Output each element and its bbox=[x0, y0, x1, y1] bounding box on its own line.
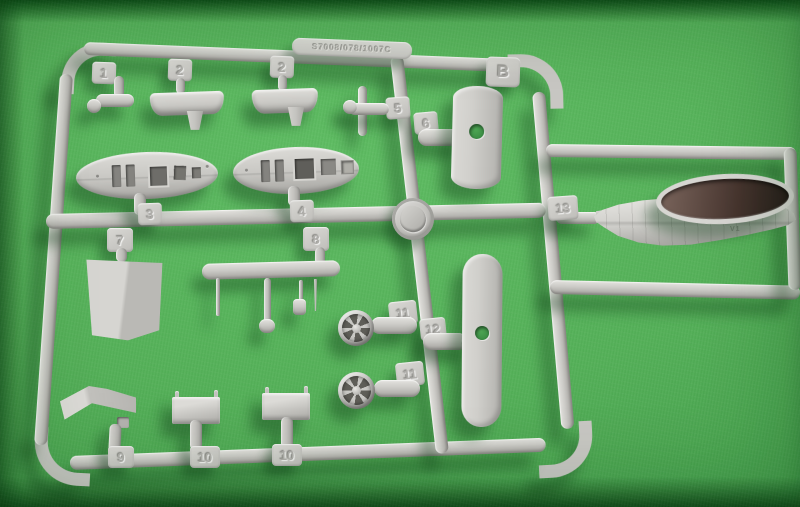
deck3-rivet-2 bbox=[206, 165, 209, 168]
part11b-spoked-wheel bbox=[338, 372, 375, 409]
part-tag-3-label: 3 bbox=[146, 206, 154, 221]
part11b-hub-cylinder bbox=[374, 380, 420, 397]
part8-paddle-stem bbox=[299, 280, 303, 300]
part-tag-2a-label: 2 bbox=[176, 62, 184, 77]
frame-rail-bottom bbox=[70, 438, 546, 470]
wing-panel-upper bbox=[451, 85, 504, 189]
deck4-rivet bbox=[245, 169, 248, 172]
part-tag-4-label: 4 bbox=[298, 203, 306, 218]
part8-spike bbox=[313, 279, 318, 311]
part-tag-1: 1 bbox=[92, 62, 117, 85]
manufacturer-logo-medallion bbox=[392, 198, 434, 240]
runner-letter: B bbox=[497, 62, 510, 82]
part10b-rect-panel bbox=[262, 393, 310, 420]
photo-model-kit-sprue: S7008/078/1007C B 1 2 2 5 6 3 bbox=[0, 0, 800, 507]
part-tag-5: 5 bbox=[385, 96, 410, 120]
part-tag-8-label: 8 bbox=[312, 232, 319, 247]
deck3-hatch-small-1 bbox=[174, 166, 186, 180]
wing-panel-lower bbox=[461, 254, 503, 427]
part-tag-13: 13 bbox=[547, 195, 579, 221]
float-hull-marking: V1 bbox=[730, 226, 741, 233]
part-tag-9-label: 9 bbox=[117, 450, 124, 465]
deck3-hatch-small-2 bbox=[192, 167, 201, 178]
deck4-hatch-mid bbox=[321, 159, 337, 176]
part-tag-10a: 10 bbox=[190, 446, 220, 468]
part8-rod-thin bbox=[216, 278, 220, 316]
part-tag-10b: 10 bbox=[272, 444, 302, 466]
part8-paddle-blade bbox=[293, 299, 306, 315]
frame-rail-left bbox=[34, 74, 73, 446]
runner-rail-extension-bottom bbox=[550, 280, 800, 300]
deck3-rivet bbox=[96, 175, 99, 178]
part-tag-9: 9 bbox=[108, 446, 134, 468]
part1-elbow-fitting bbox=[96, 94, 134, 107]
embossed-code-text: S7008/078/1007C bbox=[312, 42, 392, 54]
part11a-spoked-wheel bbox=[338, 310, 374, 346]
part-tag-4: 4 bbox=[290, 200, 315, 223]
part8-rod-foot bbox=[259, 319, 275, 333]
float-deck-part3 bbox=[75, 150, 219, 202]
part2a-curved-panel bbox=[150, 91, 225, 117]
part-tag-2b-label: 2 bbox=[278, 59, 286, 74]
frame-rail-right bbox=[532, 91, 574, 429]
deck4-hatch-small bbox=[341, 160, 354, 174]
part2b-curved-panel bbox=[252, 88, 319, 114]
deck3-slot-2 bbox=[126, 164, 136, 186]
deck4-slot-1 bbox=[261, 160, 271, 182]
part8-spreader-bar bbox=[202, 260, 340, 280]
part11a-hub-cylinder bbox=[371, 317, 417, 334]
wing-panel-lower-strut-hole bbox=[475, 326, 489, 340]
part-tag-7-label: 7 bbox=[116, 233, 123, 248]
float-hull-part: V1 bbox=[594, 170, 796, 252]
part-tag-1-label: 1 bbox=[100, 65, 108, 80]
part5-end-cap bbox=[343, 100, 357, 114]
part-tag-10b-label: 10 bbox=[280, 448, 294, 463]
deck4-slot-2 bbox=[275, 159, 285, 181]
part7-sprue-stub bbox=[116, 248, 127, 262]
part7-fin-panel bbox=[84, 258, 164, 342]
deck3-hatch-framed bbox=[148, 164, 170, 188]
runner-letter-tag: B bbox=[485, 56, 520, 87]
wing-panel-upper-strut-hole bbox=[469, 124, 484, 139]
part-tag-13-label: 13 bbox=[555, 200, 570, 216]
runner-rail-extension-top bbox=[546, 144, 796, 160]
deck3-slot-1 bbox=[112, 165, 122, 187]
deck4-hatch-large bbox=[293, 156, 317, 181]
part-tag-3: 3 bbox=[138, 203, 163, 226]
part8-rod-center bbox=[264, 278, 271, 322]
part1-end-cap bbox=[87, 99, 101, 113]
part-tag-5-label: 5 bbox=[394, 100, 402, 115]
frame-corner-bottom-right bbox=[537, 421, 595, 479]
part-tag-10a-label: 10 bbox=[198, 450, 212, 465]
